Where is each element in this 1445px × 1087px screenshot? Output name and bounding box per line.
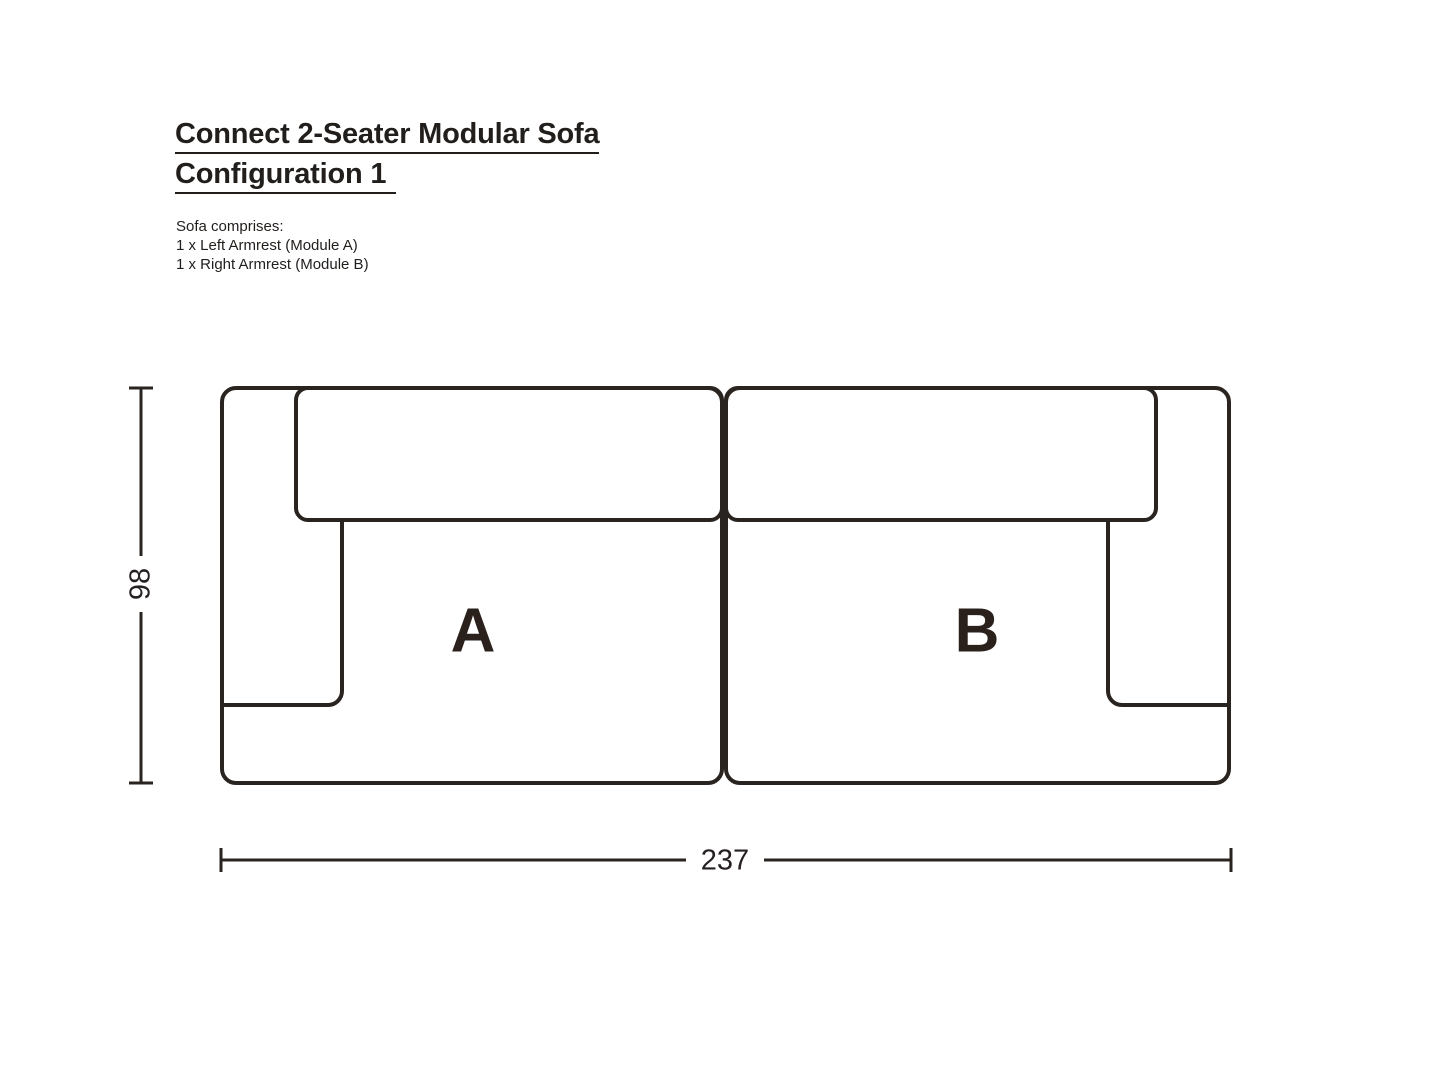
width-dimension-label: 237 [701, 845, 749, 878]
module-b-outline [726, 388, 1229, 783]
depth-dimension-label: 98 [125, 568, 158, 600]
module-a-backrest [296, 388, 722, 520]
page: Connect 2-Seater Modular Sofa Configurat… [0, 0, 1445, 1087]
module-b-armrest-line [1108, 520, 1229, 705]
module-b-label: B [955, 596, 1000, 667]
sofa-drawing [0, 0, 1445, 1087]
module-b-backrest [726, 388, 1156, 520]
module-a-label: A [451, 596, 496, 667]
module-a-armrest-line [222, 520, 342, 705]
sofa-diagram: 98 237 A B [0, 0, 1445, 1087]
